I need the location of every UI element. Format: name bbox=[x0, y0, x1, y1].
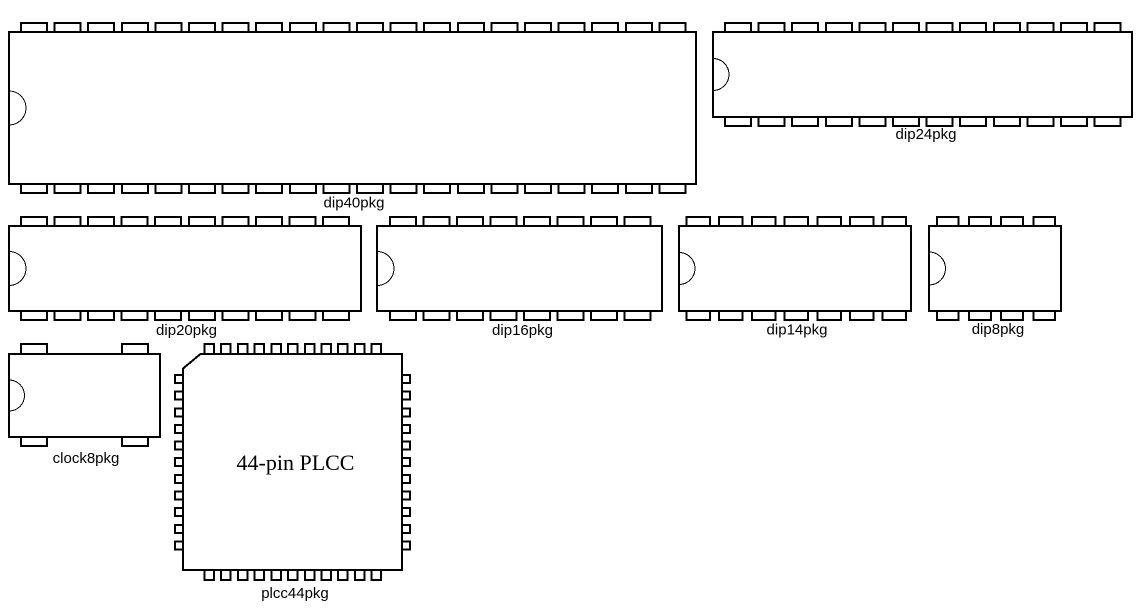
svg-text:clock8pkg: clock8pkg bbox=[53, 450, 120, 467]
svg-text:dip20pkg: dip20pkg bbox=[156, 322, 217, 339]
svg-text:plcc44pkg: plcc44pkg bbox=[261, 585, 329, 602]
svg-text:dip24pkg: dip24pkg bbox=[896, 126, 957, 143]
svg-text:44-pin PLCC: 44-pin PLCC bbox=[237, 450, 355, 475]
svg-text:dip14pkg: dip14pkg bbox=[767, 322, 828, 339]
svg-text:dip8pkg: dip8pkg bbox=[972, 321, 1025, 338]
svg-text:dip16pkg: dip16pkg bbox=[492, 322, 553, 339]
svg-text:dip40pkg: dip40pkg bbox=[324, 195, 385, 212]
